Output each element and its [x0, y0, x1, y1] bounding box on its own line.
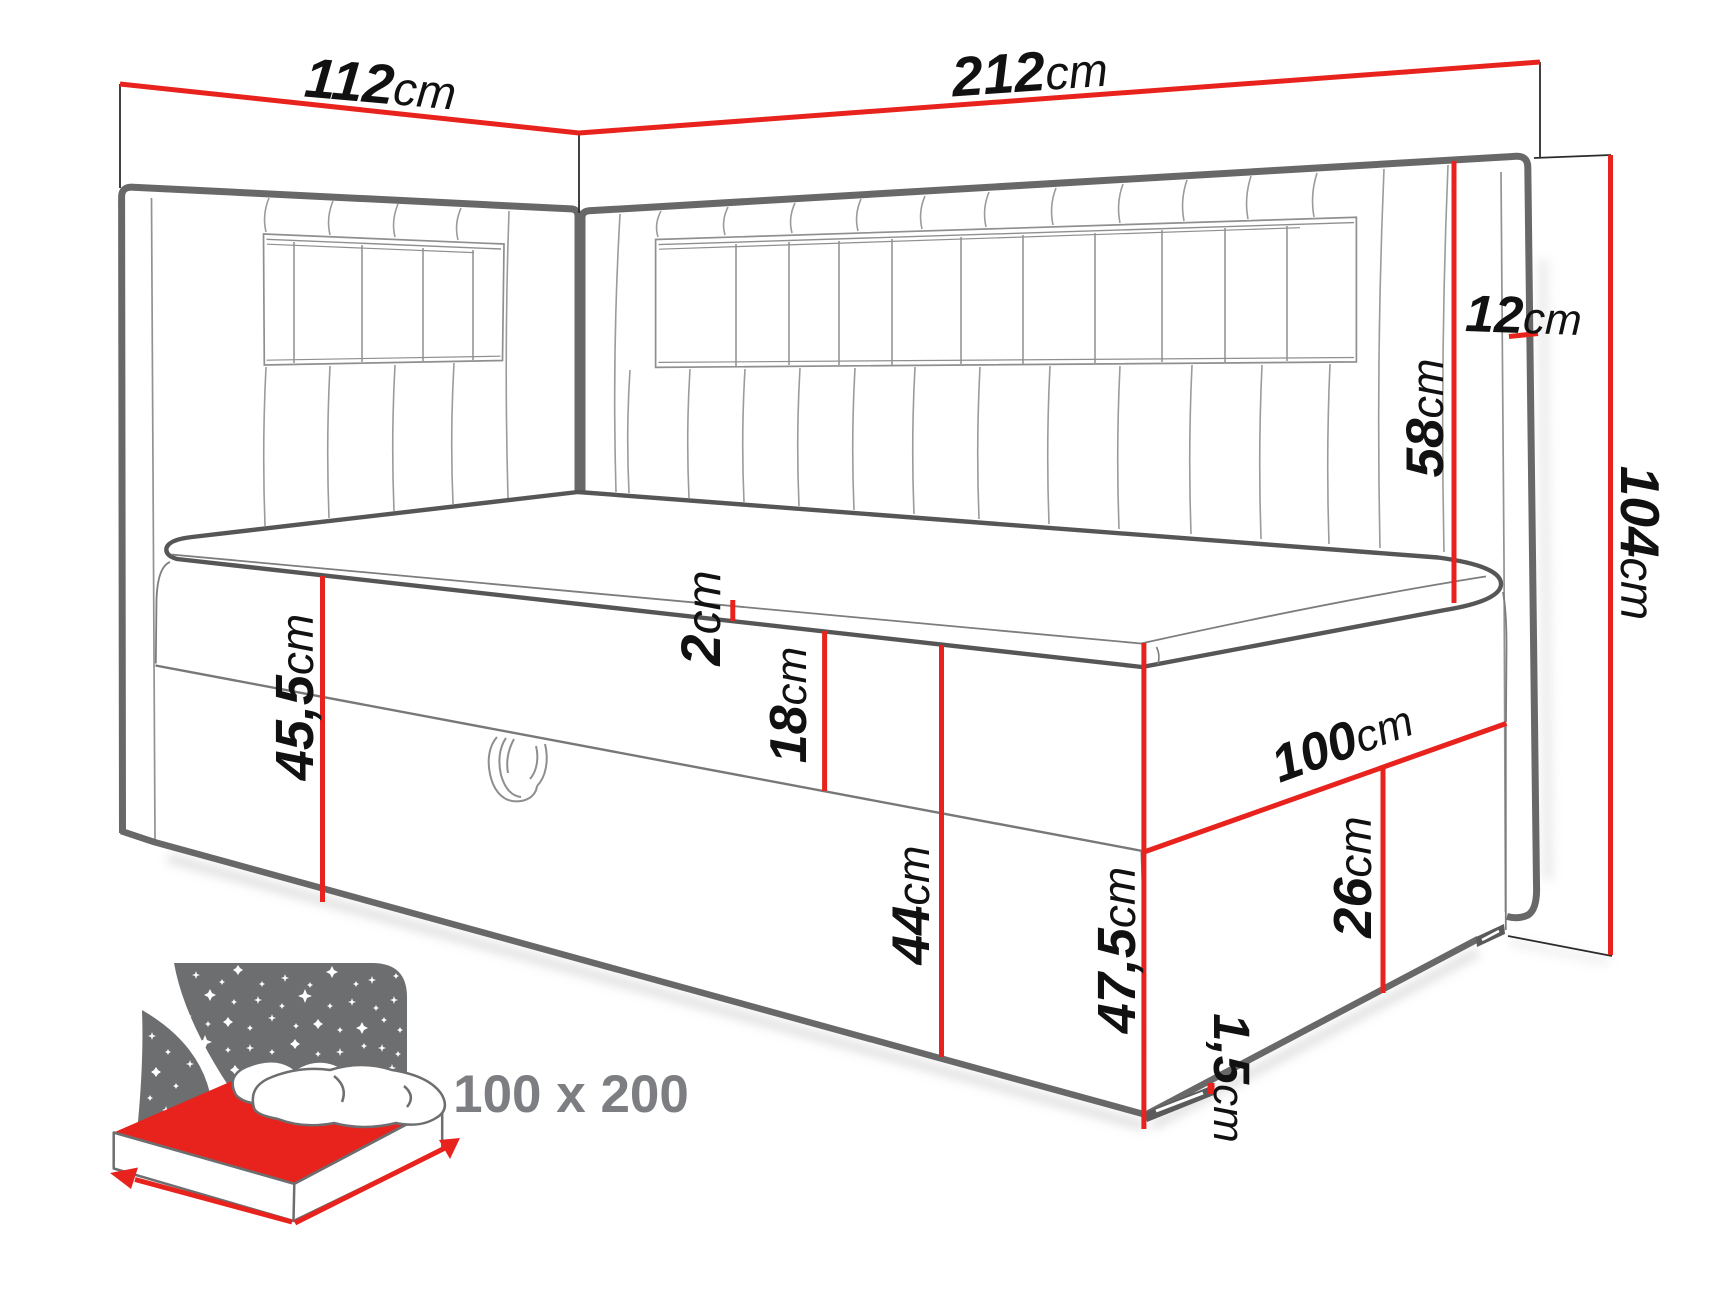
svg-text:18cm: 18cm — [760, 647, 818, 764]
svg-text:26cm: 26cm — [1323, 816, 1383, 938]
svg-text:44cm: 44cm — [882, 846, 941, 966]
svg-text:1,5cm: 1,5cm — [1203, 1013, 1260, 1143]
svg-text:58cm: 58cm — [1396, 359, 1455, 478]
svg-text:104cm: 104cm — [1609, 466, 1671, 620]
svg-text:47,5cm: 47,5cm — [1087, 867, 1147, 1034]
svg-text:100 x 200: 100 x 200 — [453, 1065, 689, 1124]
svg-text:2cm: 2cm — [669, 570, 732, 666]
svg-text:45,5cm: 45,5cm — [265, 614, 325, 781]
